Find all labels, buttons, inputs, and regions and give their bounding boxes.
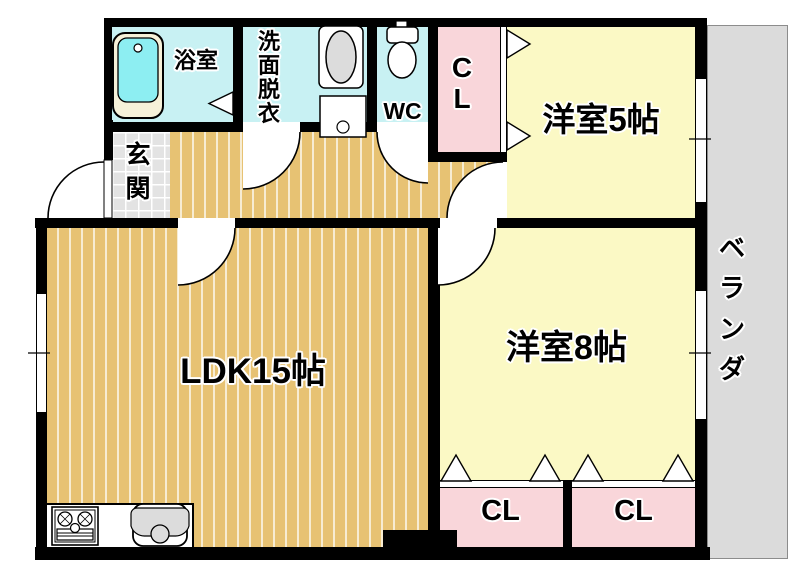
wall <box>233 18 243 122</box>
closet-left-door-strip <box>438 480 563 488</box>
wall <box>695 420 707 560</box>
wall <box>104 18 112 132</box>
kitchen-counter <box>47 503 194 547</box>
veranda-label: ベランダ <box>717 228 747 389</box>
bathroom-label: 浴室 <box>158 49 234 72</box>
wall <box>695 18 707 78</box>
washroom-label: 洗面脱衣 <box>256 30 282 126</box>
wall <box>36 218 47 293</box>
wall <box>36 413 47 560</box>
hallway-east <box>428 162 503 218</box>
wall <box>383 530 457 547</box>
window-western8-east <box>695 290 707 420</box>
floorplan: 浴室 洗面脱衣 WC CL 洋室5帖 玄関 LDK15帖 洋室8帖 CL CL … <box>0 0 800 577</box>
entrance-door-arc <box>48 160 112 218</box>
western5-label: 洋室5帖 <box>507 103 695 138</box>
hallway <box>170 132 428 218</box>
wc-label: WC <box>377 99 428 123</box>
wall <box>497 218 707 228</box>
wall <box>695 203 707 290</box>
wall <box>428 152 507 162</box>
closet-top-label: CL <box>450 53 474 115</box>
wall <box>235 218 438 228</box>
wall <box>563 480 572 560</box>
room-bathroom <box>112 27 233 122</box>
wall <box>428 18 438 162</box>
window-ldk-west <box>36 293 47 413</box>
wall <box>300 122 377 132</box>
wall <box>367 18 377 122</box>
window-western5-east <box>695 78 707 203</box>
wall <box>104 122 243 132</box>
closet-top-door-strip <box>500 27 507 152</box>
wall <box>35 547 710 560</box>
wall <box>104 18 707 27</box>
ldk-label: LDK15帖 <box>103 354 403 391</box>
wall <box>35 218 178 228</box>
closet-bottom-right-label: CL <box>572 496 695 526</box>
closet-bottom-left-label: CL <box>438 496 563 526</box>
closet-right-door-strip <box>572 480 695 488</box>
entrance-label: 玄関 <box>124 139 152 207</box>
western8-label: 洋室8帖 <box>438 331 695 367</box>
